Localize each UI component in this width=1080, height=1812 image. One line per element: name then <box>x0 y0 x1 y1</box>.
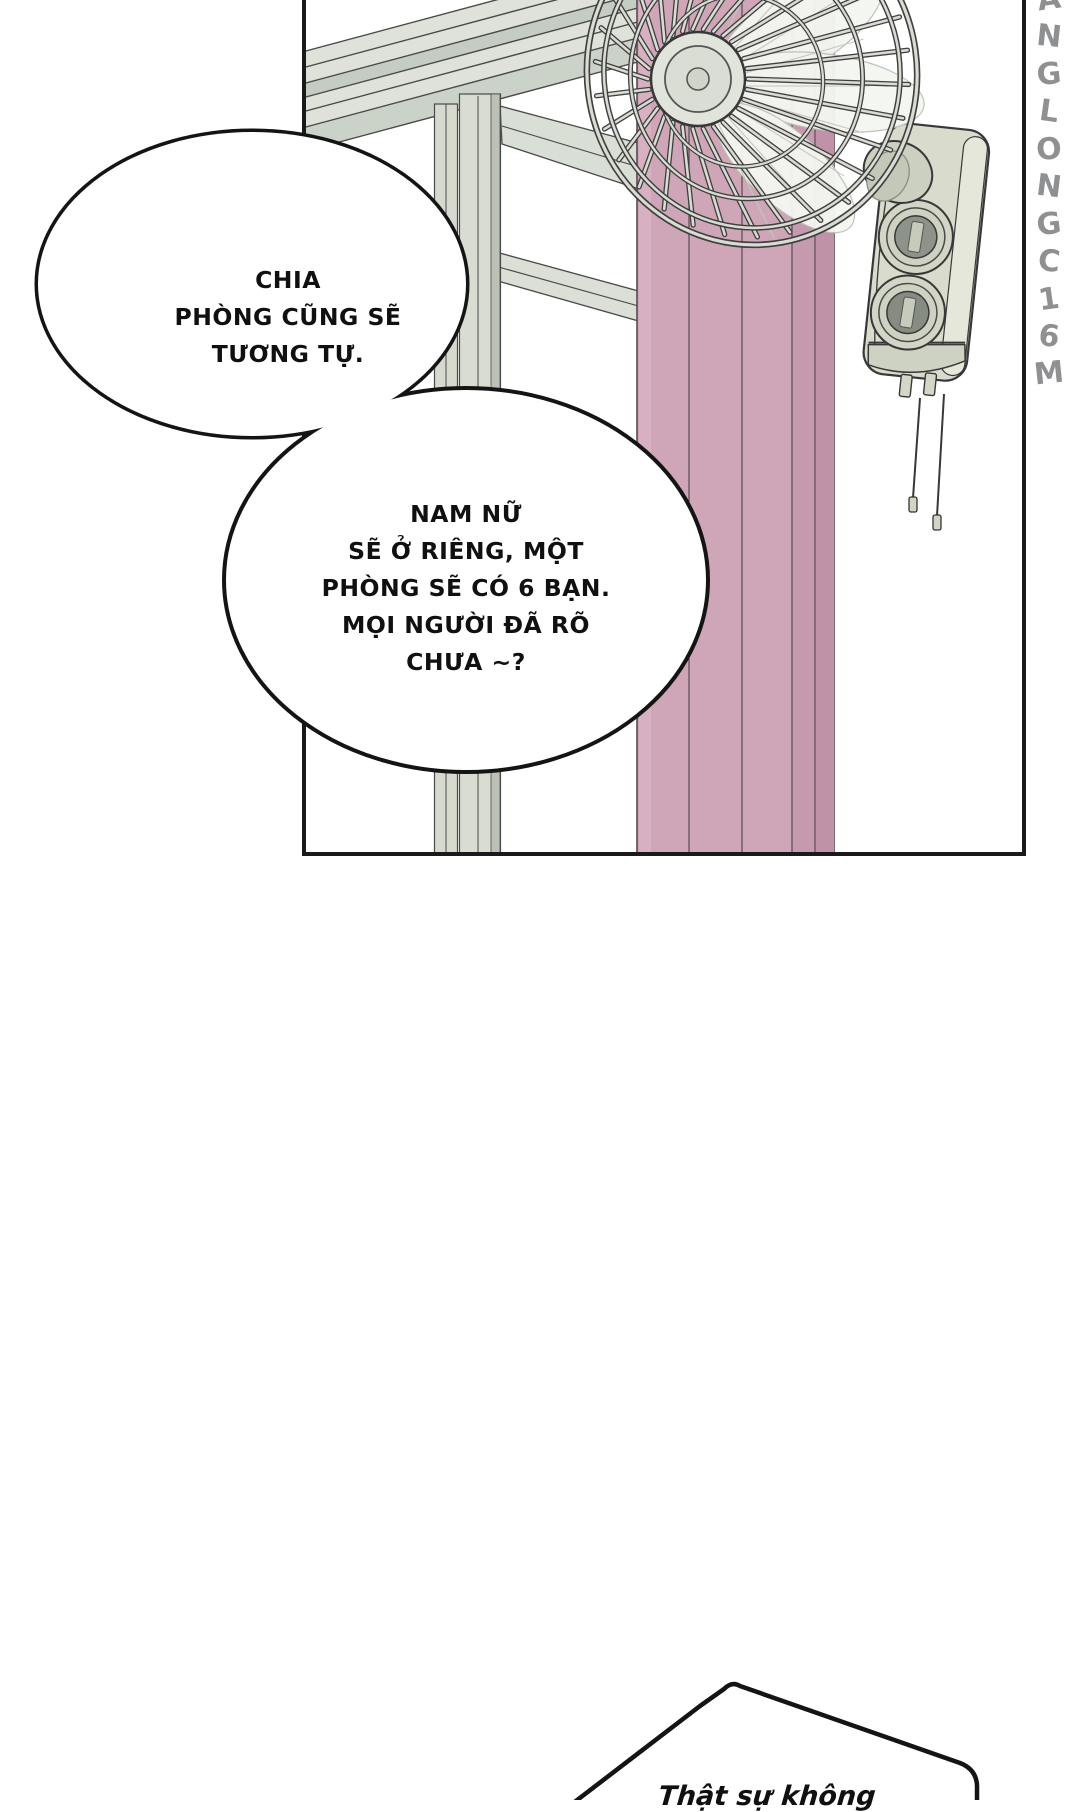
pull-cord-left <box>909 398 920 512</box>
watermark-letter: M <box>1028 356 1069 392</box>
speech-line: CHIA <box>118 262 458 299</box>
speech-bubble-1-text: CHIA PHÒNG CŨNG SẼ TƯƠNG TỰ. <box>118 262 458 373</box>
watermark-letter: 6 <box>1028 319 1070 355</box>
watermark-letter: C <box>1028 244 1069 280</box>
cord-prong <box>899 374 912 397</box>
speech-line: SẼ Ở RIÊNG, MỘT <box>266 533 666 570</box>
comic-page: { "bubbles": { "b1": { "lines": ["CHIA",… <box>0 0 1080 1800</box>
speech-line: NAM NỮ <box>266 496 666 533</box>
speech-line: CHƯA ~? <box>266 644 666 681</box>
speech-line: PHÒNG CŨNG SẼ <box>118 299 458 336</box>
watermark-letter: G <box>1028 207 1070 243</box>
fan-hub <box>651 32 745 126</box>
speech-line: TƯƠNG TỰ. <box>118 336 458 373</box>
speech-bubble-2-text: NAM NỮ SẼ Ở RIÊNG, MỘT PHÒNG SẼ CÓ 6 BẠN… <box>266 496 666 681</box>
watermark-letter: O <box>1029 132 1070 167</box>
watermark-letter: G <box>1028 57 1069 93</box>
bottom-bubble-text: Thật sự không <box>611 1781 924 1812</box>
speech-line: PHÒNG SẼ CÓ 6 BẠN. <box>266 570 666 607</box>
watermark-letter: L <box>1028 94 1070 131</box>
watermark-letter: N <box>1028 169 1070 205</box>
pull-cord-right <box>933 394 944 530</box>
speech-line: MỌI NGƯỜI ĐÃ RÕ <box>266 607 666 644</box>
watermark-letter: N <box>1028 19 1069 55</box>
cord-prong <box>923 373 936 396</box>
watermark-letter: 1 <box>1028 282 1070 319</box>
